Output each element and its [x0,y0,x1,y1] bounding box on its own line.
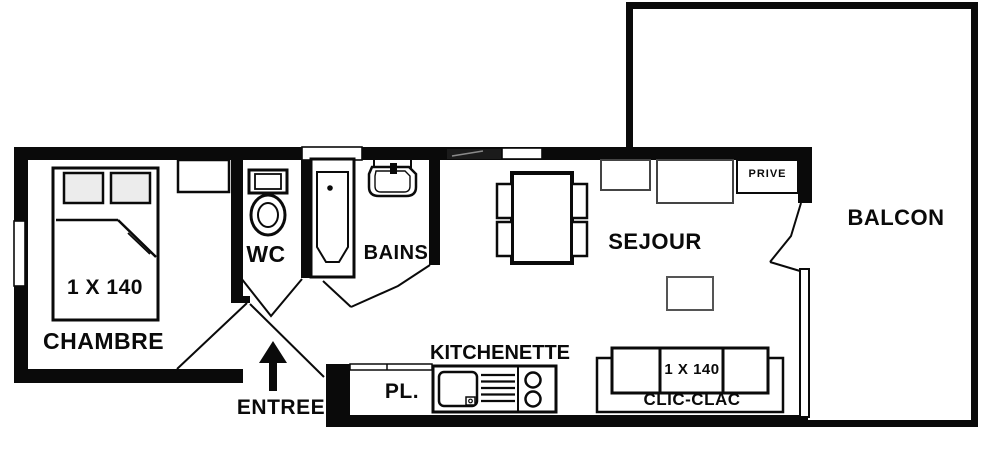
chair [497,222,511,256]
bathtub-faucet [327,185,333,191]
chair [497,184,511,218]
wall-chambre-wc-cap [231,296,250,303]
pillow [64,173,103,203]
wall-chambre-bottom [14,369,243,383]
chambre-door-swing [177,303,247,369]
kitchen-unit [433,366,556,412]
bains-door-swing [351,265,430,307]
wall-bottom [350,415,808,427]
wall-balcony-right [971,2,978,427]
chambre-room-label: CHAMBRE [43,330,163,353]
bains-room-label: BAINS [356,243,436,263]
wc-door-swing [241,278,302,316]
sideboards [601,160,798,203]
toilet-bowl-inner [258,203,278,227]
chambre-window [14,221,25,286]
sideboard [657,160,733,203]
balcony-door-swing [770,203,801,262]
balcony-glass-wall [800,269,809,417]
washbasin [369,160,416,196]
sink-drain-hole [469,399,473,403]
sejour-tinted-window [447,149,501,159]
wall-balcony-bottom [808,420,978,427]
sejour-room-label: SEJOUR [603,231,707,253]
floor-plan: 1 X 140 CHAMBRE WC BAINS ENTREE PL. KITC… [0,0,1000,464]
wall-balcony-left [626,2,633,154]
washbasin-inner [375,171,410,192]
placard-label: PL. [372,381,432,402]
kitchenette-label: KITCHENETTE [424,343,576,363]
wall-top [14,147,812,160]
entree-room-label: ENTREE [229,397,333,418]
placard-line [350,364,432,370]
wall-chambre-wc [231,160,243,303]
chair [573,222,587,256]
placard-front [350,364,432,370]
entry-arrow-icon [259,341,287,391]
bains-door-leaf [323,281,351,307]
entry-arrow-head [259,341,287,363]
sejour-window [502,148,542,159]
coffee-table [667,277,713,310]
entry-arrow-shaft [269,363,277,391]
clic-clac-size-label: 1 X 140 [650,362,734,377]
bathtub [311,159,354,277]
hob-burner [526,392,541,407]
pillow [111,173,150,203]
wc-room-label: WC [238,243,294,266]
balcony-door-leaf [770,262,800,271]
sideboard [601,160,650,190]
toilet [249,170,287,235]
dining-table [512,173,572,263]
chambre-bed-size-label: 1 X 140 [45,277,165,298]
floor-plan-drawing [0,0,1000,464]
clic-clac-label: CLIC-CLAC [630,391,754,408]
wall-sejour-right [798,147,812,203]
entree-door-swing [250,304,324,377]
chair [573,184,587,218]
toilet-tank-inner [255,174,281,189]
hob-burner [526,373,541,388]
balcon-room-label: BALCON [834,207,958,229]
dining-set [497,173,587,263]
nightstand [178,160,229,192]
prive-cupboard-label: PRIVE [737,169,798,180]
washbasin-tap [390,163,397,174]
wall-balcony-top [626,2,978,9]
bathtub-inner [317,172,348,262]
